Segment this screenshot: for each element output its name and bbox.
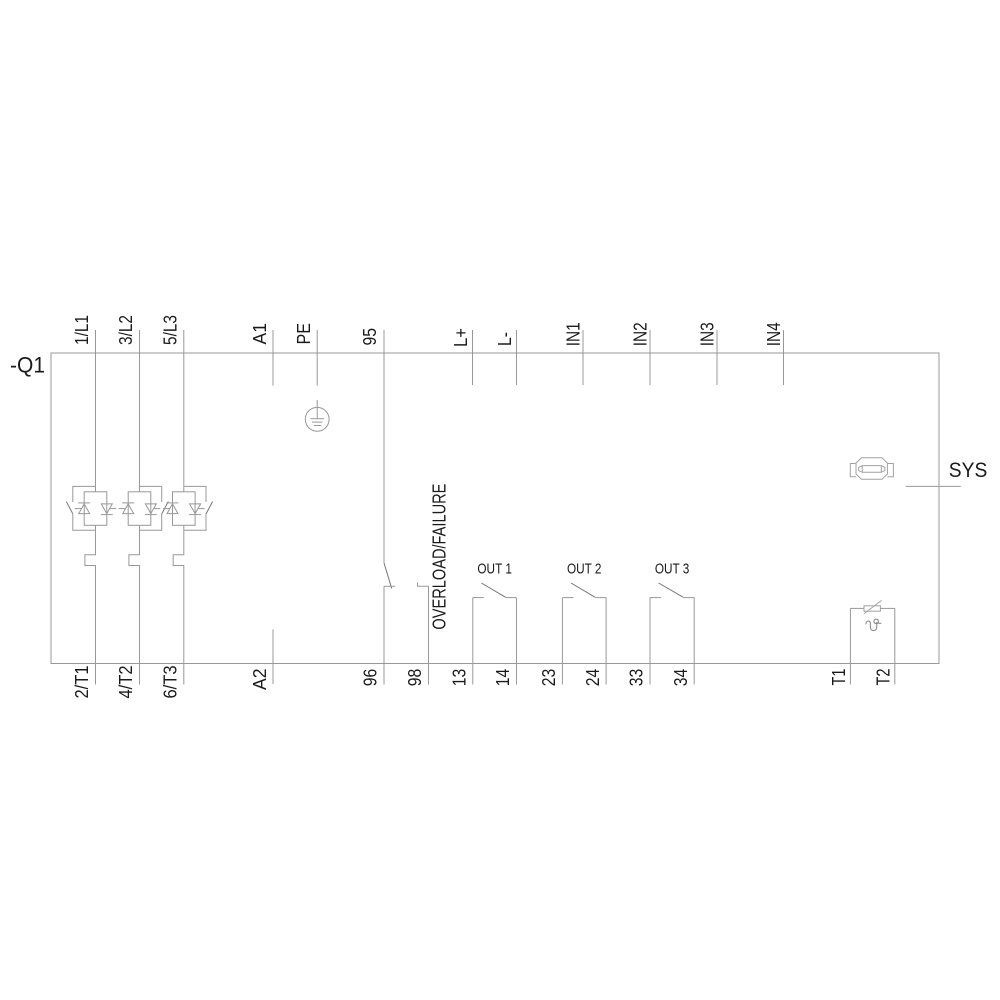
- svg-text:PE: PE: [293, 323, 314, 345]
- svg-text:-Q1: -Q1: [10, 353, 45, 378]
- svg-text:IN2: IN2: [630, 322, 651, 346]
- svg-text:5/L3: 5/L3: [160, 315, 181, 345]
- svg-text:98: 98: [404, 669, 425, 687]
- svg-text:33: 33: [626, 669, 647, 687]
- svg-text:34: 34: [670, 669, 691, 687]
- svg-text:L-: L-: [494, 332, 515, 346]
- svg-text:OUT 3: OUT 3: [655, 562, 690, 578]
- svg-text:14: 14: [492, 669, 513, 687]
- svg-text:1/L1: 1/L1: [71, 315, 92, 345]
- svg-text:13: 13: [449, 669, 470, 687]
- svg-text:IN4: IN4: [763, 322, 784, 346]
- svg-text:24: 24: [582, 669, 603, 687]
- svg-text:IN1: IN1: [563, 322, 584, 346]
- svg-text:SYS: SYS: [949, 459, 988, 482]
- svg-text:3/L2: 3/L2: [115, 315, 136, 345]
- svg-text:96: 96: [360, 669, 381, 687]
- svg-text:T1: T1: [828, 669, 849, 686]
- svg-text:2/T1: 2/T1: [71, 666, 92, 699]
- svg-text:6/T3: 6/T3: [160, 666, 181, 699]
- svg-text:4/T2: 4/T2: [115, 666, 136, 699]
- svg-text:OVERLOAD/FAILURE: OVERLOAD/FAILURE: [429, 484, 450, 630]
- svg-text:T2: T2: [873, 669, 894, 686]
- svg-text:OUT 2: OUT 2: [567, 562, 602, 578]
- svg-text:A1: A1: [249, 323, 270, 345]
- svg-text:23: 23: [538, 669, 559, 687]
- svg-text:95: 95: [359, 328, 380, 346]
- svg-text:L+: L+: [450, 328, 471, 347]
- svg-text:A2: A2: [249, 669, 270, 691]
- svg-text:OUT 1: OUT 1: [477, 562, 512, 578]
- svg-text:IN3: IN3: [697, 322, 718, 346]
